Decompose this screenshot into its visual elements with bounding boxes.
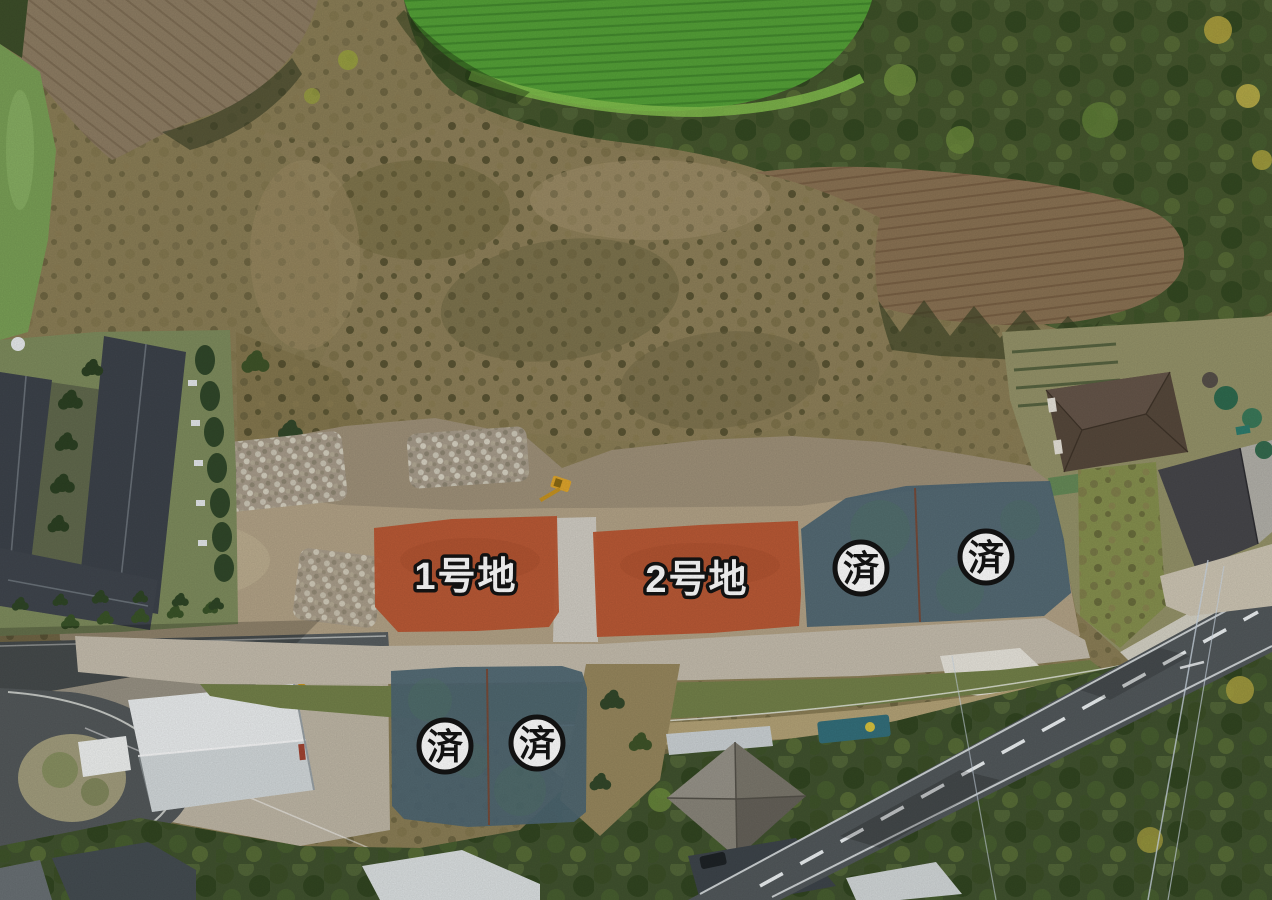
aerial-photo: 1号地 2号地 済 済 済 済: [0, 0, 1272, 900]
photo-grain: [0, 0, 1272, 900]
